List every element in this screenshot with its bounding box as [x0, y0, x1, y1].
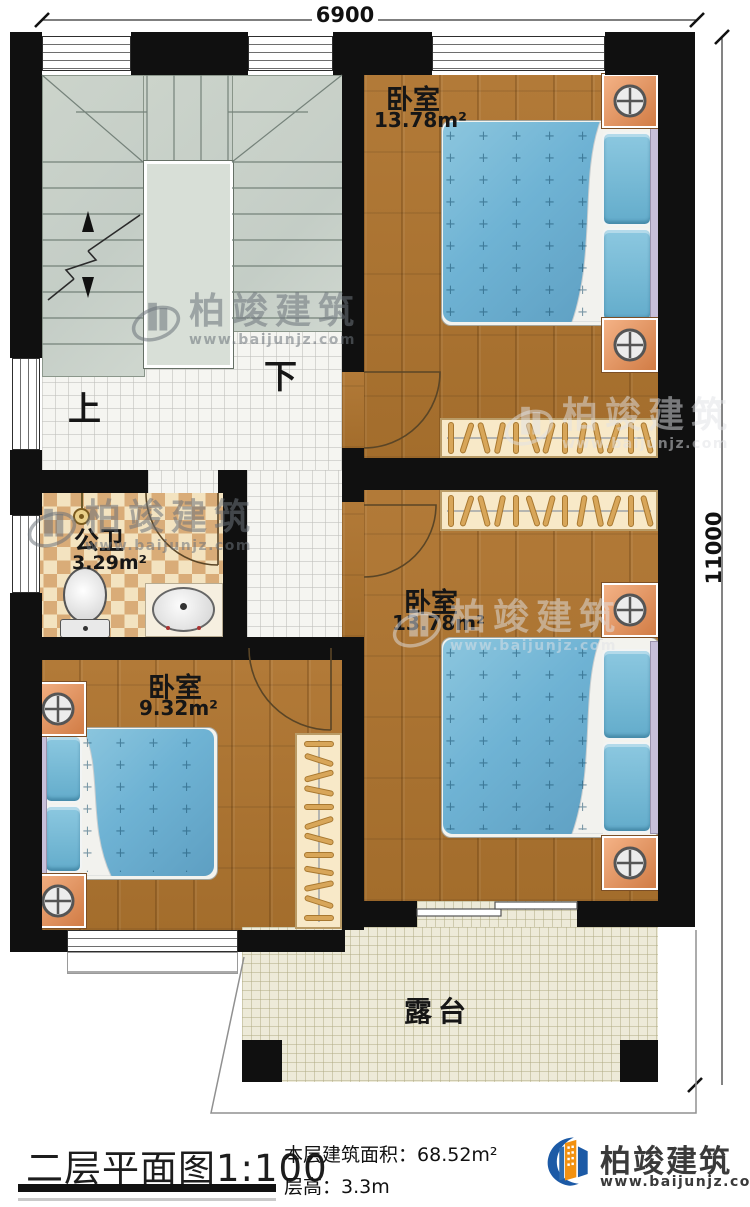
wall-segment [342, 458, 658, 490]
hanger [542, 422, 556, 454]
pillow [602, 228, 652, 322]
hanger [494, 494, 507, 527]
pillow [44, 805, 82, 873]
door-opening-floor [342, 502, 364, 637]
room-area: 13.78m² [392, 611, 485, 635]
hanger-rack [299, 741, 338, 921]
wardrobe [440, 490, 658, 531]
hanger [460, 422, 476, 454]
wall-segment [10, 75, 42, 358]
room-label: 露台 [404, 990, 472, 1030]
wall-segment [658, 32, 695, 927]
pillow [602, 132, 652, 226]
room-area: 13.78m² [374, 108, 467, 132]
hanger [303, 752, 333, 767]
hanger [303, 785, 334, 797]
bed-blanket: + + + + + + + + + + + + + + + + + + + + … [80, 729, 214, 876]
lamp-icon [612, 83, 648, 119]
hanger [304, 741, 334, 747]
title-underline [18, 1184, 276, 1192]
pendant-lamp-center [79, 514, 84, 519]
floor-area-label: 本层建筑面积： [284, 1144, 417, 1166]
hanger [606, 494, 622, 526]
window [432, 36, 605, 71]
lamp-icon [612, 592, 648, 628]
blanket-pattern: + + + + + + + + + + + + + + + + + + + + … [445, 643, 601, 830]
nightstand [602, 74, 658, 128]
wall-segment [342, 75, 364, 372]
nightstand [602, 318, 658, 372]
stairs-up-label: 上 [68, 382, 101, 430]
floor-area-row: 本层建筑面积：68.52m² [284, 1140, 498, 1167]
pillow [44, 735, 82, 803]
lamp-icon [40, 883, 76, 919]
stairs-down-label: 下 [264, 350, 297, 398]
hanger [304, 804, 334, 810]
floor-height-label: 层高： [284, 1176, 341, 1198]
hanger [303, 816, 333, 831]
hanger [628, 422, 634, 454]
hanger [640, 422, 654, 454]
hanger [494, 422, 507, 455]
window [67, 930, 238, 952]
hanger [460, 494, 476, 526]
hanger [606, 422, 622, 454]
bed-blanket: + + + + + + + + + + + + + + + + + + + + … [443, 639, 603, 834]
hanger [303, 832, 334, 846]
pillow [602, 742, 652, 833]
blanket-pattern: + + + + + + + + + + + + + + + + + + + + … [82, 733, 212, 872]
hanger [628, 495, 634, 527]
wall-segment [218, 470, 247, 493]
hanger [477, 494, 491, 526]
floor-height-value: 3.3m [341, 1176, 390, 1198]
hanger [576, 422, 587, 455]
stair-flight-right [232, 75, 344, 332]
hanger [477, 422, 491, 454]
faucet [180, 603, 187, 610]
pillow [602, 649, 652, 740]
hanger [303, 865, 334, 876]
window [42, 36, 131, 71]
nightstand [602, 583, 658, 637]
wall-segment [10, 470, 148, 493]
hanger [303, 769, 334, 783]
hanger-rack [448, 494, 650, 527]
blanket-pattern: + + + + + + + + + + + + + + + + + + + + … [445, 126, 601, 318]
wardrobe [295, 733, 342, 929]
wall-segment [10, 930, 70, 952]
wall-segment [333, 32, 432, 75]
hanger [576, 494, 587, 527]
hanger [448, 495, 454, 527]
brand-website: www.baijunjz.com [600, 1174, 750, 1190]
room-area: 3.29m² [72, 552, 147, 574]
faucet-handle [166, 626, 170, 630]
door-opening-floor [342, 372, 364, 448]
hanger [562, 422, 568, 454]
bathroom-doorway-floor [148, 470, 218, 493]
hanger [525, 422, 541, 454]
wall-segment [10, 637, 345, 660]
lamp-icon [612, 845, 648, 881]
stair-flight-left [42, 75, 145, 377]
wall-segment [10, 32, 42, 75]
hanger [592, 494, 605, 527]
floor-area-value: 68.52m² [417, 1144, 498, 1166]
window-sill [67, 952, 238, 974]
window [248, 36, 333, 71]
room-area: 9.32m² [139, 696, 218, 720]
toilet-bowl [63, 567, 107, 623]
hanger [513, 495, 519, 527]
nightstand [602, 836, 658, 890]
hanger [304, 852, 334, 858]
hanger [562, 495, 568, 527]
title-underline-light [18, 1198, 276, 1201]
wall-segment [342, 637, 364, 930]
hanger-rack [448, 422, 650, 454]
toilet-flush-button [83, 626, 88, 631]
terrace-floor [417, 901, 577, 927]
hanger [640, 494, 654, 526]
hanger [592, 422, 605, 455]
floor-height-row: 层高：3.3m [284, 1172, 390, 1199]
wardrobe [440, 418, 658, 458]
hanger [542, 494, 556, 526]
window [12, 515, 40, 593]
wall-segment [577, 901, 695, 927]
hanger [525, 494, 541, 526]
hanger [448, 422, 454, 454]
hanger [303, 880, 334, 892]
terrace-pillar [242, 1040, 282, 1082]
lamp-icon [40, 691, 76, 727]
faucet-handle [197, 626, 201, 630]
dimension-top-label: 6900 [312, 3, 378, 27]
hanger [304, 915, 334, 921]
terrace-pillar [620, 1040, 658, 1082]
wall-segment [223, 493, 247, 637]
wall-segment [235, 930, 345, 952]
stair-landing [143, 160, 234, 369]
hanger [513, 422, 519, 454]
bed-blanket: + + + + + + + + + + + + + + + + + + + + … [443, 122, 603, 322]
lamp-icon [612, 327, 648, 363]
dimension-right-label: 11000 [702, 488, 728, 608]
window [12, 358, 40, 450]
hanger [303, 895, 333, 910]
wall-segment [345, 901, 417, 927]
brand-logo-icon [543, 1131, 595, 1191]
wall-segment [131, 32, 248, 75]
hallway-floor [247, 470, 342, 637]
floor-plan-canvas: + + + + + + + + + + + + + + + + + + + + … [0, 0, 750, 1207]
